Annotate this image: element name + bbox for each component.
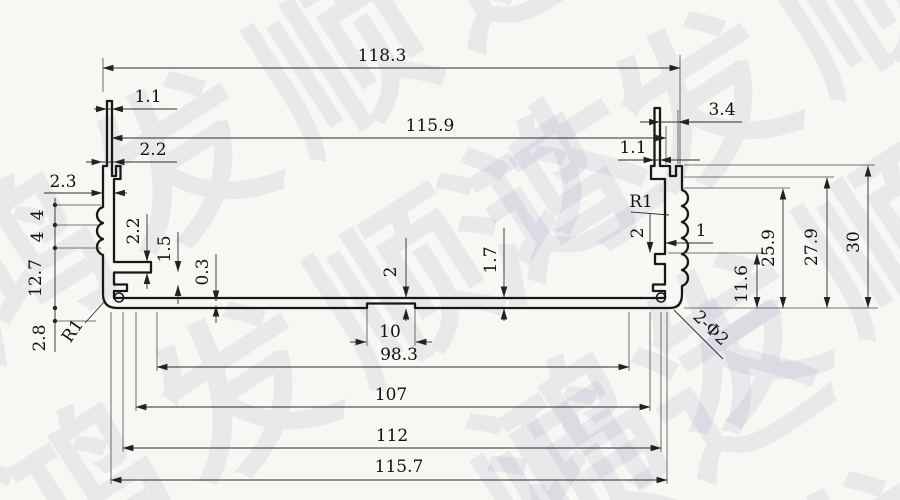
dimension-label: 1.1 bbox=[619, 138, 646, 158]
dimension-label: 11.6 bbox=[732, 265, 752, 303]
dimension-label: 98.3 bbox=[380, 345, 418, 365]
dimension-wall-right: 2 bbox=[628, 214, 650, 253]
dimension-stub-right: 1 bbox=[666, 221, 713, 243]
dimension-label: 3.4 bbox=[708, 100, 735, 120]
dimension-height-30: 30 bbox=[684, 165, 875, 308]
dimension-radius-right: R1 bbox=[629, 192, 669, 215]
dimension-plate-thickness: 2 bbox=[381, 238, 406, 321]
dimension-label: 30 bbox=[844, 231, 864, 253]
dimension-label: 115.9 bbox=[406, 116, 455, 136]
dimension-label: 2 bbox=[628, 228, 648, 239]
dimension-label: 1.7 bbox=[481, 246, 501, 273]
dimension-label: R1 bbox=[58, 316, 88, 347]
dimension-label: 2 bbox=[381, 267, 401, 278]
dimension-head-left: 2.2 bbox=[86, 140, 177, 162]
dimension-label: 4 bbox=[28, 232, 48, 243]
dimension-label: 1.1 bbox=[134, 87, 161, 107]
dimension-groove-width: 10 bbox=[350, 309, 432, 346]
dimension-holes-callout: 2-Φ2 bbox=[674, 307, 732, 359]
dimension-label: 25.9 bbox=[759, 229, 779, 267]
dimension-label: 0.3 bbox=[193, 258, 213, 285]
dimension-label: 2.2 bbox=[139, 140, 166, 160]
dimension-label: 4 bbox=[28, 210, 48, 221]
drawing-canvas: 鸿发顺达 鸿发顺达 鸿发顺达 鸿发顺达 鸿发顺达 鸿发顺达 118.3 115.… bbox=[0, 0, 900, 500]
dimension-label: 115.7 bbox=[375, 457, 424, 477]
dimension-label: 2.2 bbox=[124, 217, 144, 244]
dimension-overall-top: 118.3 bbox=[103, 46, 680, 164]
dimension-label: 2.8 bbox=[30, 324, 50, 351]
dimension-label: 118.3 bbox=[358, 46, 407, 66]
dimension-label: 2-Φ2 bbox=[689, 307, 733, 350]
dimension-label: 12.7 bbox=[26, 259, 46, 297]
dimension-label: 10 bbox=[379, 322, 401, 342]
dimension-gap-left: 1.5 bbox=[155, 232, 178, 304]
dimension-label: 1.5 bbox=[155, 235, 175, 262]
dimension-step-bottom: 0.3 bbox=[193, 254, 216, 323]
dimension-label: 27.9 bbox=[802, 228, 822, 266]
dimension-inner-top: 115.9 bbox=[112, 116, 666, 164]
dimension-radius-left: R1 bbox=[58, 302, 104, 347]
dimension-label: 107 bbox=[375, 385, 407, 405]
dimension-label: 112 bbox=[376, 426, 408, 446]
profile-drawing: 118.3 115.9 1.1 2.2 3.4 bbox=[0, 0, 900, 500]
dimension-label: 1 bbox=[696, 221, 707, 241]
dimension-label: 2.3 bbox=[49, 172, 76, 192]
dimension-label: R1 bbox=[629, 192, 653, 212]
dimension-ledge-left: 2.2 bbox=[124, 214, 147, 289]
